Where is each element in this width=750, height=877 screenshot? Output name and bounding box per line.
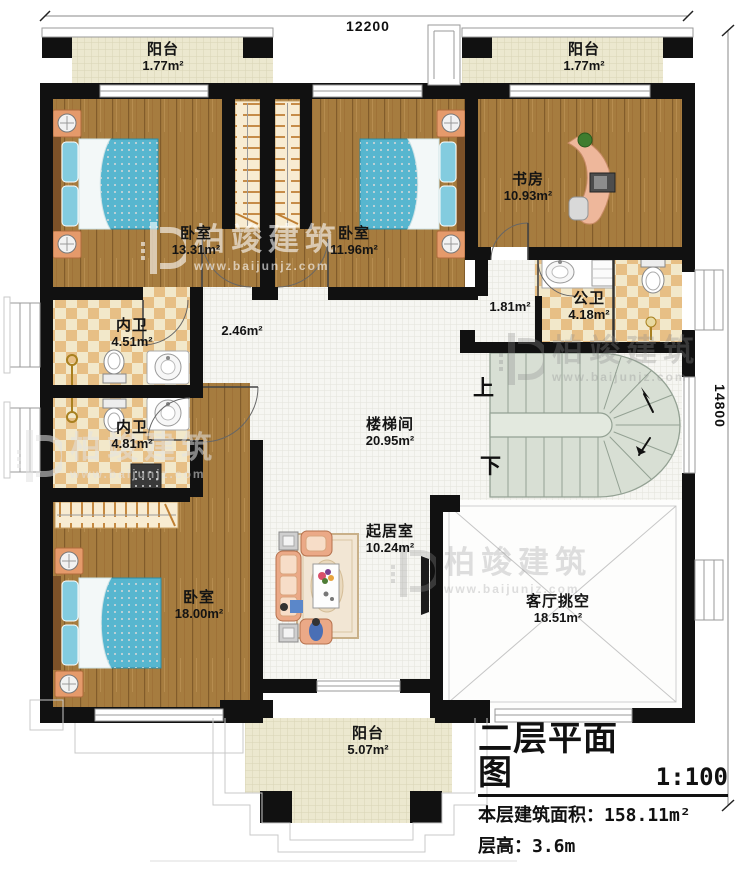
desk-chair xyxy=(569,197,588,220)
room-label-corridor: 2.46m² xyxy=(221,324,262,339)
room-label-balcony-top-left: 阳台1.77m² xyxy=(142,42,183,73)
room-label-stairwell: 楼梯间20.95m² xyxy=(366,417,414,448)
bay-window xyxy=(428,25,460,85)
floor-height-value: 3.6m xyxy=(532,836,575,857)
dimension-height: 14800 xyxy=(712,376,728,436)
plant xyxy=(578,133,592,147)
page-title: 二层平面图 xyxy=(478,722,644,790)
stair-landing-rail xyxy=(490,413,612,437)
stairs-down-label: 下 xyxy=(480,450,501,480)
title-block: 二层平面图 1:100 本层建筑面积：158.11m² 层高：3.6m xyxy=(478,722,728,858)
balcony-strip xyxy=(462,58,492,85)
room-label-inner-bath-2: 内卫4.81m² xyxy=(111,420,152,451)
floor-height-row: 层高：3.6m xyxy=(478,835,728,859)
floor-area-row: 本层建筑面积：158.11m² xyxy=(478,804,728,828)
room-label-bedroom-3: 卧室18.00m² xyxy=(175,590,223,621)
floorplan-canvas: 12200 14800 阳台1.77m² 阳台1.77m² 卧室13.31m² … xyxy=(0,0,750,877)
cabinet xyxy=(592,260,613,286)
bed-pillow xyxy=(62,186,78,226)
tv xyxy=(421,556,429,615)
bed-pillow xyxy=(62,142,78,182)
floor-area-label: 本层建筑面积： xyxy=(478,805,604,825)
room-label-inner-bath-1: 内卫4.51m² xyxy=(111,318,152,349)
floor-area-value: 158.11m² xyxy=(604,805,691,826)
scale-label: 1:100 xyxy=(656,765,728,790)
room-label-hall: 1.81m² xyxy=(489,300,530,315)
stair xyxy=(490,353,680,497)
floor-drain xyxy=(646,317,656,327)
room-label-study: 书房10.93m² xyxy=(504,172,552,203)
room-label-balcony-top-right: 阳台1.77m² xyxy=(563,42,604,73)
stairs-up-label: 上 xyxy=(473,372,494,402)
room-label-bedroom-1: 卧室13.31m² xyxy=(172,226,220,257)
bed-headboard xyxy=(53,137,61,231)
room-label-void: 客厅挑空18.51m² xyxy=(526,594,590,625)
cushion xyxy=(290,600,303,613)
balcony-strip xyxy=(243,58,273,85)
dimension-width: 12200 xyxy=(346,18,390,34)
balcony-bottom-floor-ext xyxy=(292,793,411,823)
room-label-living: 起居室10.24m² xyxy=(366,524,414,555)
room-label-public-bath: 公卫4.18m² xyxy=(568,291,609,322)
floor-height-label: 层高： xyxy=(478,836,532,856)
toilet-bowl xyxy=(642,267,664,293)
room-label-balcony-bottom: 阳台5.07m² xyxy=(347,726,388,757)
room-label-bedroom-2: 卧室11.96m² xyxy=(330,226,378,257)
